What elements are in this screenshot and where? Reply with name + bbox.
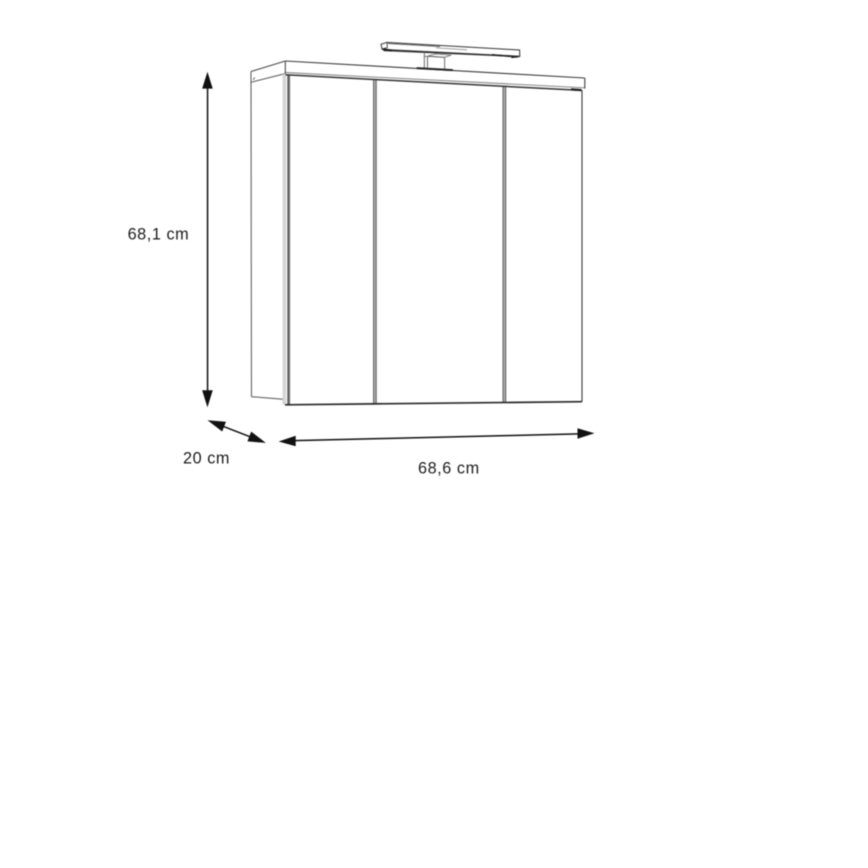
svg-text:20 cm: 20 cm xyxy=(183,449,230,467)
svg-text:68,6 cm: 68,6 cm xyxy=(418,460,480,478)
svg-text:68,1 cm: 68,1 cm xyxy=(128,226,190,244)
